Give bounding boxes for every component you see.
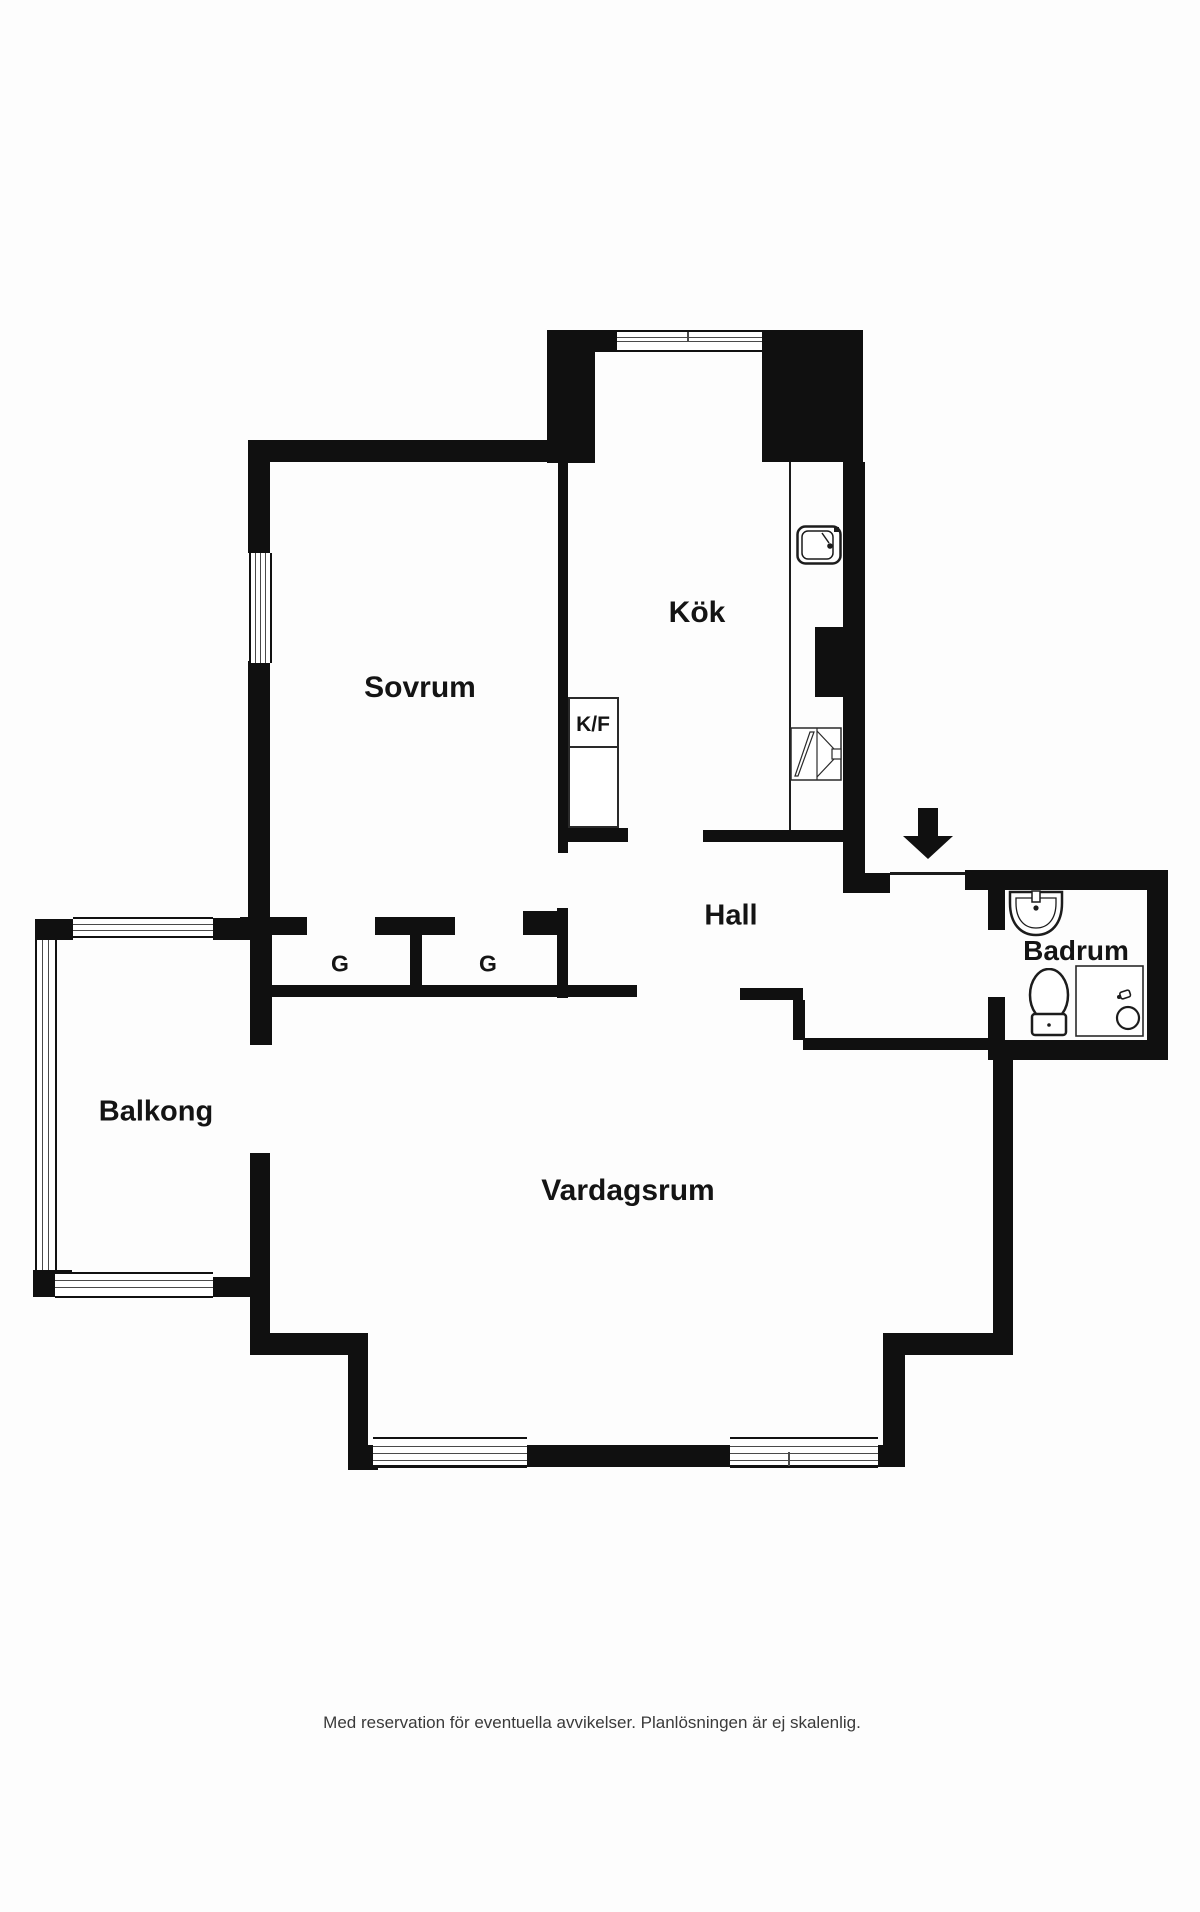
balcony-rail-top bbox=[73, 917, 213, 938]
window-line bbox=[373, 1446, 527, 1447]
room-label-kok: Kök bbox=[669, 596, 726, 630]
wall-kitchen-bottom bbox=[703, 830, 843, 842]
shower-icon bbox=[1075, 965, 1145, 1037]
floor-plan: Sovrum Kök K/F Hall Badrum Balkong Varda… bbox=[0, 0, 1200, 1912]
wall-se-step-h bbox=[883, 1333, 1013, 1355]
wall-south-mid bbox=[527, 1445, 730, 1467]
window-line bbox=[265, 553, 266, 663]
window-line bbox=[255, 553, 256, 663]
wall-west-above-balcony-door bbox=[250, 940, 272, 1045]
wall-west-lower bbox=[250, 1153, 270, 1355]
window-mullion bbox=[687, 332, 689, 342]
closet-label-g1: G bbox=[331, 951, 349, 978]
window-line bbox=[373, 1453, 527, 1454]
wall-west-mid bbox=[248, 661, 270, 918]
window-line bbox=[730, 1453, 878, 1454]
wall-se-corner bbox=[878, 1445, 905, 1467]
stove-icon bbox=[790, 727, 842, 781]
window-line bbox=[617, 337, 762, 338]
wall-kitchen-left-band bbox=[547, 350, 595, 463]
wall-badrum-top bbox=[965, 870, 1168, 890]
room-label-sovrum: Sovrum bbox=[364, 671, 476, 705]
rail-line bbox=[55, 1280, 213, 1281]
balcony-corner-br bbox=[213, 1277, 250, 1297]
rail-line bbox=[42, 940, 43, 1270]
room-label-badrum: Badrum bbox=[1023, 935, 1129, 967]
wall-sovrum-top bbox=[248, 440, 548, 462]
rail-line bbox=[73, 924, 213, 925]
rail-line bbox=[73, 930, 213, 931]
window-line bbox=[373, 1460, 527, 1461]
wall-hall-step-c bbox=[803, 1038, 993, 1050]
wall-vardagsrum-east bbox=[993, 1040, 1013, 1355]
wall-entrance-left-block bbox=[843, 873, 890, 893]
wall-closet-top-mid bbox=[375, 917, 455, 935]
wall-badrum-west-a bbox=[988, 890, 1005, 930]
window-line bbox=[617, 341, 762, 342]
washbasin-icon bbox=[1007, 890, 1065, 937]
wall-closet-bottom bbox=[267, 985, 637, 997]
balcony-rail-bottom bbox=[55, 1272, 213, 1298]
wall-hall-step-a bbox=[740, 988, 803, 1000]
wall-kitchen-door-stub bbox=[558, 828, 628, 842]
rail-line bbox=[48, 940, 49, 1270]
wall-kitchen-topleft-corner bbox=[547, 330, 617, 352]
closet-label-g2: G bbox=[479, 951, 497, 978]
window-line bbox=[260, 553, 261, 663]
room-label-vardagsrum: Vardagsrum bbox=[541, 1174, 714, 1208]
window-line bbox=[730, 1460, 878, 1461]
room-label-hall: Hall bbox=[704, 900, 757, 933]
wall-west-upper bbox=[248, 440, 270, 553]
wall-badrum-west-b bbox=[988, 997, 1005, 1043]
wall-east-kitchen bbox=[843, 462, 865, 874]
toilet-icon bbox=[1028, 968, 1072, 1038]
wall-sovrum-kok-divider bbox=[558, 461, 568, 853]
kitchen-sink-icon bbox=[796, 525, 842, 565]
wall-hall-step-b bbox=[793, 1000, 805, 1040]
room-label-balkong: Balkong bbox=[99, 1096, 213, 1129]
wall-balcony-junction bbox=[213, 918, 272, 940]
wall-kitchen-topright-block bbox=[762, 330, 863, 462]
wall-badrum-east bbox=[1147, 870, 1168, 1060]
sovrum-west-window bbox=[249, 553, 272, 663]
vardagsrum-window-left bbox=[373, 1437, 527, 1468]
wall-closet-divider bbox=[410, 935, 422, 988]
balcony-rail-left bbox=[35, 940, 57, 1270]
kitchen-top-window bbox=[617, 330, 762, 352]
window-mullion bbox=[788, 1452, 790, 1466]
wall-badrum-bottom bbox=[988, 1040, 1168, 1060]
balcony-corner-tl bbox=[35, 919, 73, 940]
disclaimer-caption: Med reservation för eventuella avvikelse… bbox=[323, 1713, 861, 1733]
wall-counter-protrusion bbox=[815, 627, 843, 697]
rail-line bbox=[55, 1287, 213, 1288]
entrance-threshold-line bbox=[890, 872, 967, 875]
room-label-kf: K/F bbox=[576, 713, 610, 737]
vardagsrum-window-right bbox=[730, 1437, 878, 1468]
window-line bbox=[730, 1446, 878, 1447]
wall-sw-step-v bbox=[348, 1355, 368, 1467]
